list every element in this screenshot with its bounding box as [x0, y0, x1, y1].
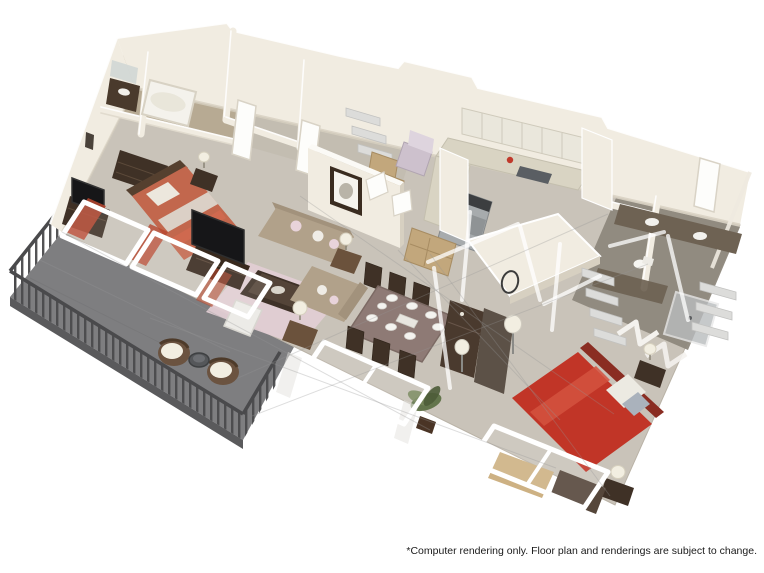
wall-art: [85, 132, 94, 150]
patio-table: [189, 353, 209, 367]
kitchen-left-wall: [440, 148, 468, 242]
kitchen-red-item: [507, 157, 513, 163]
disclaimer-text: *Computer rendering only. Floor plan and…: [257, 545, 757, 557]
floorplan-page: *Computer rendering only. Floor plan and…: [0, 0, 764, 573]
kitchen-right-wall: [582, 128, 612, 210]
floorplan-render: [0, 0, 764, 573]
patio-chair: [207, 359, 239, 385]
patio-chair: [158, 340, 190, 366]
sink: [693, 232, 707, 240]
sink: [645, 218, 659, 226]
